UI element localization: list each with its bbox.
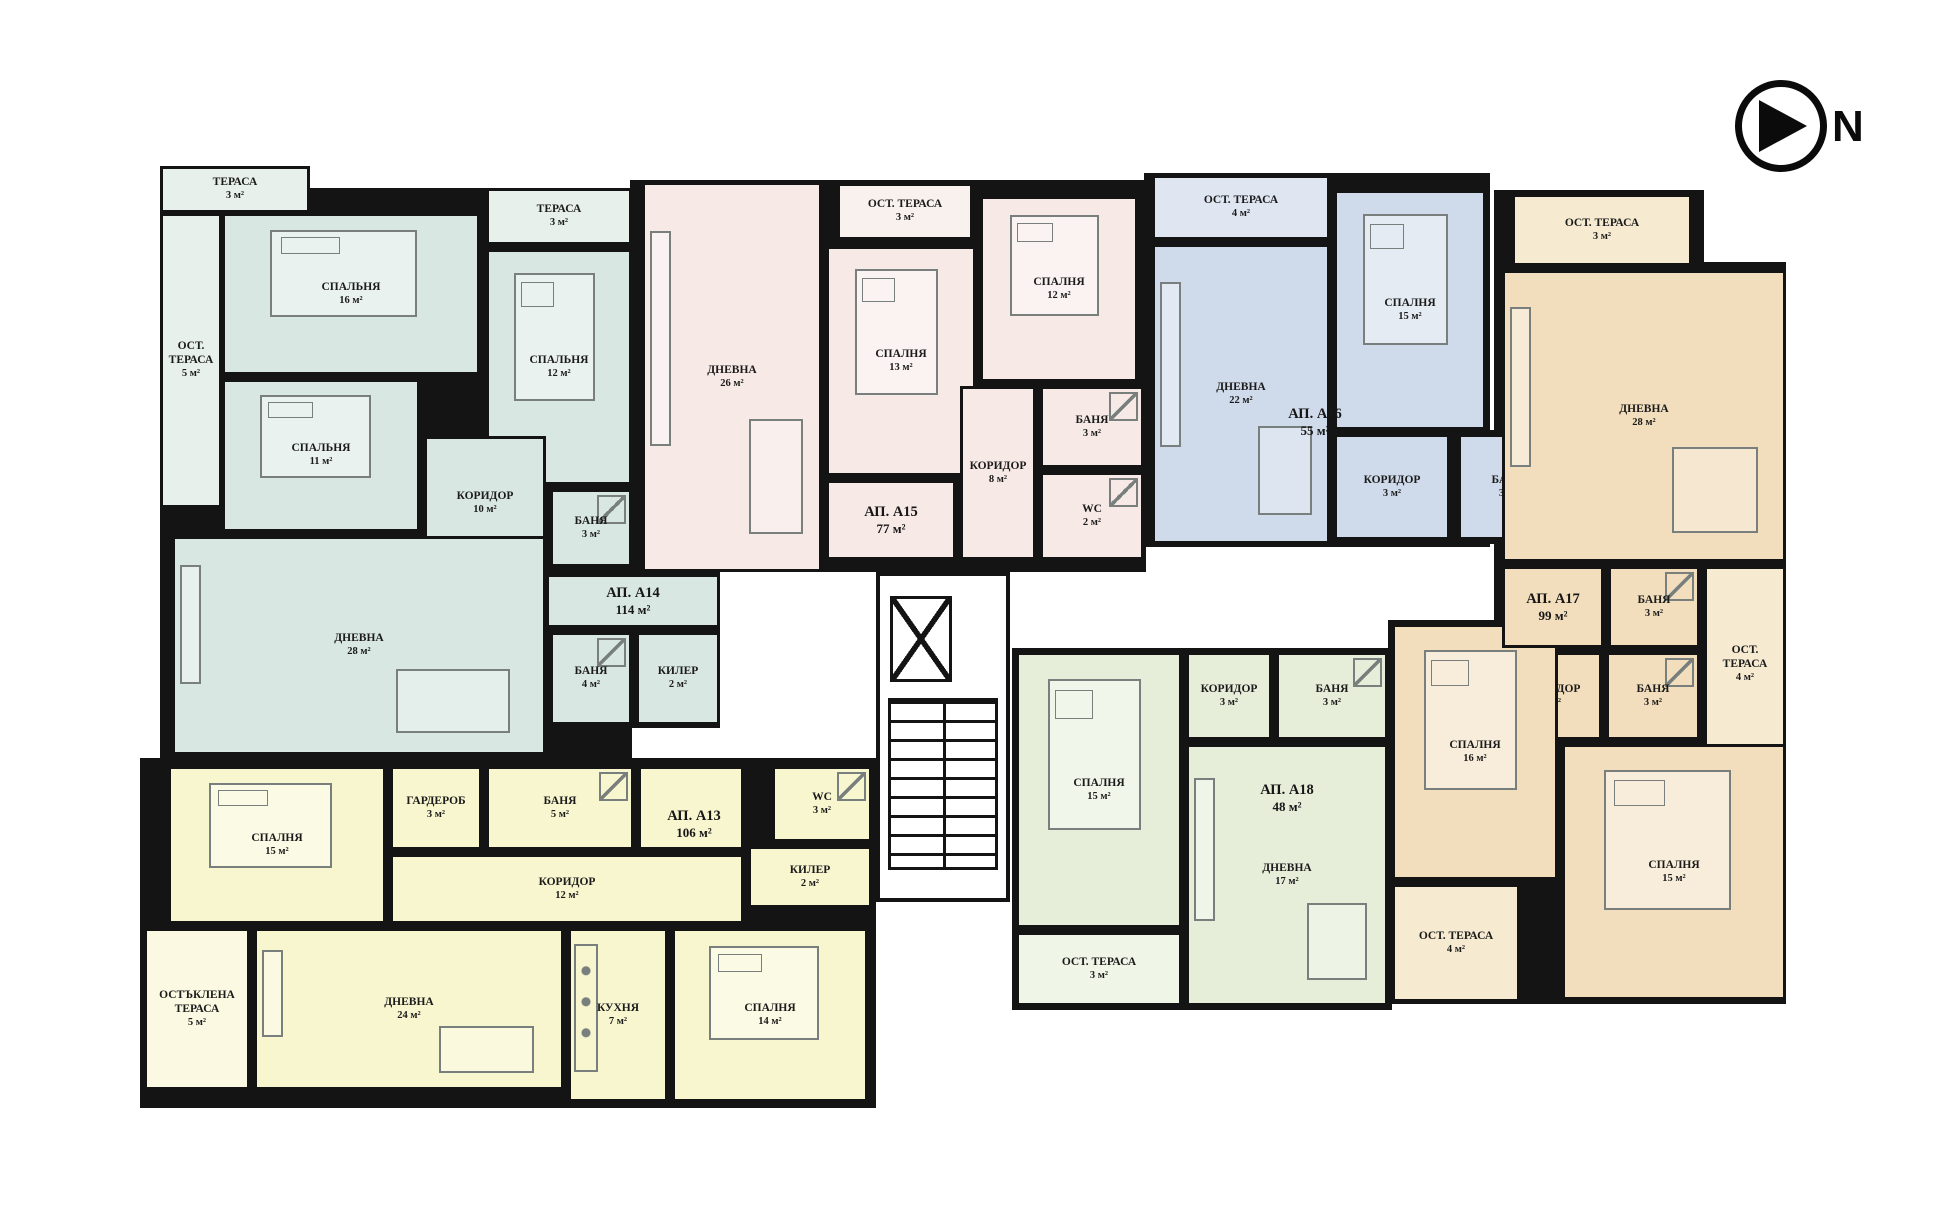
room-a14-dnevna-28: ДНЕВНА28 м² — [172, 536, 546, 755]
room-label: ОСТ. ТЕРАСА5 м² — [163, 216, 219, 505]
room-a13-banya-5: БАНЯ5 м² — [486, 766, 634, 850]
bed-furniture-icon — [260, 395, 371, 477]
room-a15-dnevna-26: ДНЕВНА26 м² — [642, 182, 822, 572]
room-label: КИЛЕР2 м² — [639, 635, 717, 722]
living-furniture-icon — [262, 950, 283, 1037]
table-furniture-icon — [1258, 426, 1311, 514]
room-label: ОСТ. ТЕРАСА4 м² — [1395, 887, 1517, 999]
elevator-shaft-icon — [890, 596, 952, 682]
table-furniture-icon — [396, 669, 510, 733]
room-label: ТЕРАСА3 м² — [163, 169, 307, 210]
room-a16-koridor-3: КОРИДОР3 м² — [1334, 434, 1450, 540]
room-a13-hall — [638, 766, 744, 850]
bed-furniture-icon — [709, 946, 819, 1040]
north-arrow-icon — [1759, 100, 1807, 152]
room-label: КОРИДОР8 м² — [963, 389, 1033, 557]
room-a17-dnevna-28: ДНЕВНА28 м² — [1502, 270, 1786, 562]
room-a14-banya-3: БАНЯ3 м² — [550, 489, 632, 567]
room-a13-koridor-12: КОРИДОР12 м² — [390, 854, 744, 924]
room-label: ОСТЪКЛЕНА ТЕРАСА5 м² — [147, 931, 247, 1087]
room-a18-dnevna-17: ДНЕВНА17 м² — [1186, 744, 1388, 1006]
room-label: КОРИДОР3 м² — [1337, 437, 1447, 537]
room-label: ОСТ. ТЕРАСА3 м² — [840, 186, 970, 237]
room-a14-banya-4: БАНЯ4 м² — [550, 632, 632, 725]
living-furniture-icon — [1194, 778, 1215, 921]
room-a18-koridor-3: КОРИДОР3 м² — [1186, 652, 1272, 740]
room-label: ОСТ. ТЕРАСА3 м² — [1019, 935, 1179, 1003]
room-label: ОСТ. ТЕРАСА3 м² — [1515, 197, 1689, 263]
bed-furniture-icon — [209, 783, 332, 868]
table-furniture-icon — [439, 1026, 533, 1073]
room-a15-hall — [826, 480, 956, 560]
room-label: КИЛЕР2 м² — [751, 849, 869, 905]
room-a17-spalnya-15: СПАЛНЯ15 м² — [1562, 744, 1786, 1000]
room-a17-banya-3-upper: БАНЯ3 м² — [1608, 566, 1700, 648]
shower-furniture-icon — [1665, 572, 1694, 601]
compass-north-label: N — [1832, 102, 1864, 152]
room-a17-ost-terasa-3: ОСТ. ТЕРАСА3 м² — [1512, 194, 1692, 266]
staircase-icon — [888, 698, 998, 870]
room-a17-ost-terasa-4-bottom: ОСТ. ТЕРАСА4 м² — [1392, 884, 1520, 1002]
shower-furniture-icon — [597, 495, 626, 524]
room-a15-spalnya-12: СПАЛНЯ12 м² — [980, 196, 1138, 382]
room-a18-ost-terasa-3: ОСТ. ТЕРАСА3 м² — [1016, 932, 1182, 1006]
room-a13-dnevna-24: ДНЕВНА24 м² — [254, 928, 564, 1090]
room-a15-spalnya-13: СПАЛНЯ13 м² — [826, 246, 976, 476]
room-a17-hall — [1502, 566, 1604, 648]
bed-furniture-icon — [270, 230, 416, 317]
room-label: ОСТ. ТЕРАСА4 м² — [1155, 178, 1327, 237]
room-a13-kiler-2: КИЛЕР2 м² — [748, 846, 872, 908]
shower-furniture-icon — [1109, 392, 1138, 421]
room-a14-terasa-2: ТЕРАСА3 м² — [486, 188, 632, 245]
shower-furniture-icon — [599, 772, 628, 801]
room-a13-garderob-3: ГАРДЕРОБ3 м² — [390, 766, 482, 850]
room-a16-dnevna-22: ДНЕВНА22 м² — [1152, 244, 1330, 544]
room-a13-spalnya-15: СПАЛНЯ15 м² — [168, 766, 386, 924]
room-a14-spalnya-16: СПАЛЬНЯ16 м² — [222, 213, 480, 375]
bed-furniture-icon — [514, 273, 595, 402]
room-a14-hall — [546, 574, 720, 628]
bed-furniture-icon — [1604, 770, 1730, 910]
room-a15-koridor-8: КОРИДОР8 м² — [960, 386, 1036, 560]
room-label: ОСТ. ТЕРАСА4 м² — [1707, 569, 1783, 759]
room-a16-spalnya-15: СПАЛНЯ15 м² — [1334, 190, 1486, 430]
room-label: КОРИДОР3 м² — [1189, 655, 1269, 737]
room-a14-ost-terasa-5: ОСТ. ТЕРАСА5 м² — [160, 213, 222, 508]
kitchen-furniture-icon — [574, 944, 598, 1072]
table-furniture-icon — [1307, 903, 1368, 980]
room-label: ГАРДЕРОБ3 м² — [393, 769, 479, 847]
room-a17-ost-terasa-4-right: ОСТ. ТЕРАСА4 м² — [1704, 566, 1786, 762]
bed-furniture-icon — [1010, 215, 1098, 316]
room-a14-spalnya-11: СПАЛЬНЯ11 м² — [222, 379, 420, 532]
room-a14-terasa-1: ТЕРАСА3 м² — [160, 166, 310, 213]
shower-furniture-icon — [597, 638, 626, 667]
room-label: КОРИДОР12 м² — [393, 857, 741, 921]
bed-furniture-icon — [1048, 679, 1141, 830]
bed-furniture-icon — [1363, 214, 1448, 345]
shower-furniture-icon — [1353, 658, 1382, 687]
room-a16-ost-terasa-4: ОСТ. ТЕРАСА4 м² — [1152, 175, 1330, 240]
room-a14-kiler-2: КИЛЕР2 м² — [636, 632, 720, 725]
room-a15-banya-3: БАНЯ3 м² — [1040, 386, 1144, 468]
shower-furniture-icon — [1665, 658, 1694, 687]
table-furniture-icon — [1672, 447, 1758, 533]
room-a13-ostaklena-terasa-5: ОСТЪКЛЕНА ТЕРАСА5 м² — [144, 928, 250, 1090]
bed-furniture-icon — [855, 269, 939, 394]
shower-furniture-icon — [1109, 478, 1138, 507]
living-furniture-icon — [650, 231, 671, 446]
shower-furniture-icon — [837, 772, 866, 801]
room-a17-spalnya-16: СПАЛНЯ16 м² — [1392, 624, 1558, 880]
room-label: ТЕРАСА3 м² — [489, 191, 629, 242]
room-a15-ost-terasa-3: ОСТ. ТЕРАСА3 м² — [837, 183, 973, 240]
room-a13-kuhnya-7: КУХНЯ7 м² — [568, 928, 668, 1102]
room-a15-wc-2: WC2 м² — [1040, 472, 1144, 560]
bed-furniture-icon — [1424, 650, 1517, 790]
room-a18-banya-3: БАНЯ3 м² — [1276, 652, 1388, 740]
floor-plan: N ТЕРАСА3 м²ОСТ. ТЕРАСА5 м²СПАЛЬНЯ16 м²С… — [0, 0, 1942, 1217]
living-furniture-icon — [1510, 307, 1531, 467]
room-a17-banya-3-lower: БАНЯ3 м² — [1606, 652, 1700, 740]
compass: N — [1735, 80, 1915, 200]
living-furniture-icon — [1160, 282, 1181, 447]
stairwell-core — [876, 572, 1010, 902]
table-furniture-icon — [749, 419, 803, 534]
room-a18-spalnya-15: СПАЛНЯ15 м² — [1016, 652, 1182, 928]
room-a13-wc-3: WC3 м² — [772, 766, 872, 842]
living-furniture-icon — [180, 565, 201, 684]
room-a13-spalnya-14: СПАЛНЯ14 м² — [672, 928, 868, 1102]
